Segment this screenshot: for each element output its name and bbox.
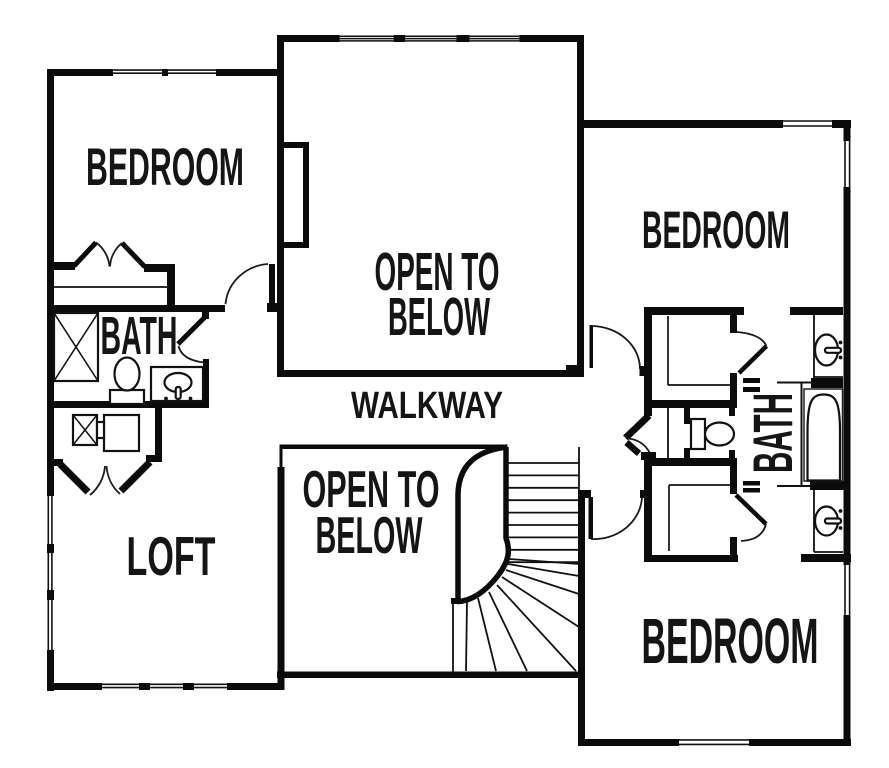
svg-text:LOFT: LOFT (127, 525, 216, 587)
svg-text:BELOW: BELOW (316, 507, 424, 565)
svg-text:BELOW: BELOW (388, 287, 490, 347)
svg-text:BEDROOM: BEDROOM (86, 138, 244, 197)
svg-text:BEDROOM: BEDROOM (642, 605, 819, 677)
svg-text:BEDROOM: BEDROOM (642, 201, 790, 260)
svg-text:WALKWAY: WALKWAY (351, 385, 503, 427)
svg-text:BATH: BATH (741, 393, 804, 473)
svg-text:BATH: BATH (101, 306, 178, 366)
